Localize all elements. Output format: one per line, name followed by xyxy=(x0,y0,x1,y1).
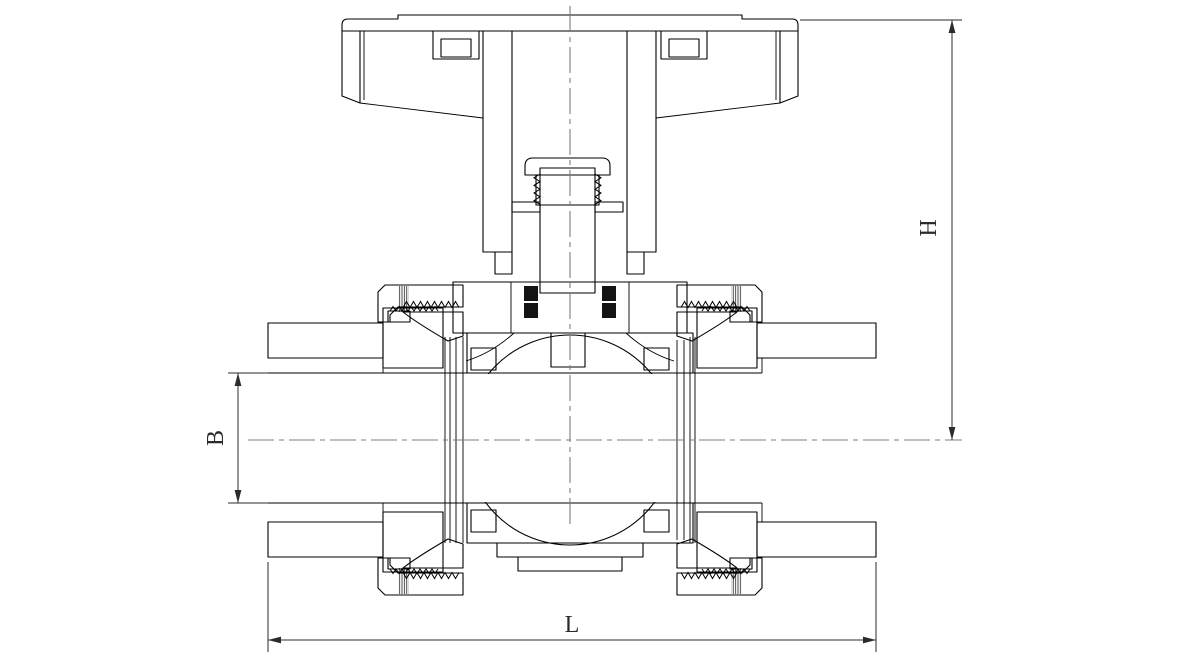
background xyxy=(0,0,1203,660)
o-ring xyxy=(602,286,616,301)
o-ring xyxy=(524,303,538,318)
o-ring xyxy=(524,286,538,301)
drawing-canvas: H B L xyxy=(0,0,1203,660)
o-ring xyxy=(602,303,616,318)
dimension-label-height: H xyxy=(916,219,942,236)
dimension-label-bore: B xyxy=(203,430,229,446)
dimension-label-length: L xyxy=(565,612,580,638)
ball-valve-section-drawing: H B L xyxy=(0,0,1203,660)
